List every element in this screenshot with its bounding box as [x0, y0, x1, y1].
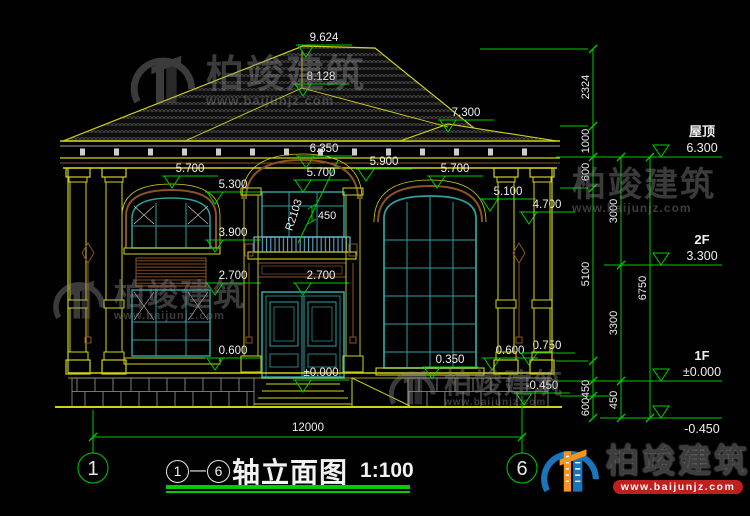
floor-elevation: ±0.000	[683, 365, 721, 379]
elevation-value: 0.600	[496, 345, 525, 357]
floor-level-label: -0.450	[648, 406, 722, 436]
elevation-value: 0.350	[436, 354, 465, 366]
elevation-value: 5.900	[370, 156, 399, 168]
entry-door	[262, 292, 344, 378]
roof-main-hip	[63, 46, 490, 141]
balcony-railing	[254, 237, 350, 252]
brand-logo-icon	[540, 444, 602, 500]
chain-dim-value: 450	[608, 391, 620, 409]
elevation-value: 0.600	[219, 345, 248, 357]
title-separator: —	[190, 462, 206, 480]
floor-elevation: -0.450	[684, 422, 719, 436]
elevation-value: 4.700	[533, 199, 562, 211]
elevation-marker: 2.700	[205, 270, 261, 295]
floor-level-label: 2F3.300	[648, 232, 722, 265]
floor-level-label: 屋顶6.300	[648, 124, 722, 157]
sill-2f-left	[124, 248, 220, 254]
elevation-marker: ±0.000	[293, 367, 349, 392]
brand-logo-url: www.baijunjz.com	[613, 480, 744, 494]
chain-dim-value: 2324	[580, 75, 592, 99]
elevation-value: 5.700	[441, 163, 470, 175]
annotation-text: 450	[318, 210, 336, 222]
extension-lines	[480, 49, 648, 418]
elevation-value: 3.900	[219, 227, 248, 239]
brand-logo: 柏竣建筑 www.baijunjz.com	[540, 444, 750, 500]
elevation-value: 5.700	[176, 163, 205, 175]
balcony-slab	[248, 252, 356, 259]
elevation-value: ±0.000	[303, 367, 338, 379]
axis-number-right: 6	[516, 458, 527, 480]
chain-dim-value: 3300	[608, 311, 620, 335]
floor-name: 2F	[694, 232, 709, 247]
window-right-arched	[374, 180, 486, 375]
door-steps	[254, 377, 410, 406]
chain-dim-value: 6750	[637, 276, 649, 300]
chain-dim-value: 600	[580, 163, 592, 181]
elevation-marker: 5.100	[480, 186, 536, 211]
elevation-marker: 5.700	[427, 163, 483, 188]
annotation-text: R2103	[283, 198, 304, 233]
window-1f-left	[124, 290, 220, 364]
elevation-value: 5.700	[307, 167, 336, 179]
floor-elevation: 6.300	[686, 141, 717, 155]
axis-bubble-6: 6	[507, 453, 537, 483]
floor-name: 1F	[694, 348, 709, 363]
elevation-marker: 5.700	[293, 167, 349, 192]
louver-panel-left	[136, 258, 206, 286]
title-axis-from: 1	[166, 460, 189, 483]
elevation-marker: 6.350	[296, 143, 352, 168]
title-axis-to: 6	[207, 460, 230, 483]
center-pilaster	[241, 188, 261, 372]
floor-level-label: 1F±0.000	[648, 348, 722, 381]
floor-elevation: 3.300	[686, 249, 717, 263]
elevation-value: 6.350	[310, 143, 339, 155]
sill-1f-left	[124, 358, 220, 364]
elevation-value: 9.624	[310, 32, 339, 44]
elevation-marker: 4.700	[519, 199, 575, 224]
title-underline-thin	[166, 491, 410, 493]
elevation-value: 0.750	[533, 340, 562, 352]
elevation-marker: 5.300	[205, 179, 261, 204]
pendant-ornament	[82, 243, 94, 343]
brand-logo-text: 柏竣建筑	[606, 444, 750, 479]
dim-chain: 232410006005100450600	[580, 45, 597, 422]
window-2f-left	[122, 184, 220, 254]
dim-chain: 6750	[637, 153, 654, 422]
side-ramp	[352, 378, 410, 406]
dim-chain: 30003300450	[608, 153, 625, 422]
chain-dim-value: 3000	[608, 199, 620, 223]
cad-elevation-drawing: 12000 1 6 9.6248.1287.3006.3505.7005.300…	[0, 0, 750, 516]
chain-dim-value: 600	[580, 398, 592, 416]
elevation-linework: 12000 1 6 9.6248.1287.3006.3505.7005.300…	[0, 0, 750, 516]
roof	[63, 46, 557, 141]
axis-number-left: 1	[87, 458, 98, 480]
title-scale: 1:100	[360, 459, 414, 483]
elevation-value: 2.700	[219, 270, 248, 282]
elevation-value: 7.300	[452, 107, 481, 119]
elevation-value: 2.700	[307, 270, 336, 282]
floor-name: 屋顶	[689, 124, 715, 139]
chain-dim-value: 450	[580, 380, 592, 398]
elevation-value: 5.300	[219, 179, 248, 191]
elevation-value: 8.128	[307, 71, 336, 83]
chain-dim-value: 5100	[580, 262, 592, 286]
sill-right	[376, 368, 484, 375]
column-left-inner	[102, 168, 126, 374]
elevation-value: -0.450	[526, 380, 559, 392]
total-width-dim: 12000	[292, 422, 324, 434]
title-underline-thick	[166, 485, 410, 489]
pendant-ornament	[513, 243, 525, 343]
axis-bubble-1: 1	[78, 453, 108, 483]
chain-dim-value: 1000	[580, 129, 592, 153]
elevation-marker: 0.600	[205, 345, 261, 370]
elevation-marker: 5.900	[356, 156, 412, 181]
